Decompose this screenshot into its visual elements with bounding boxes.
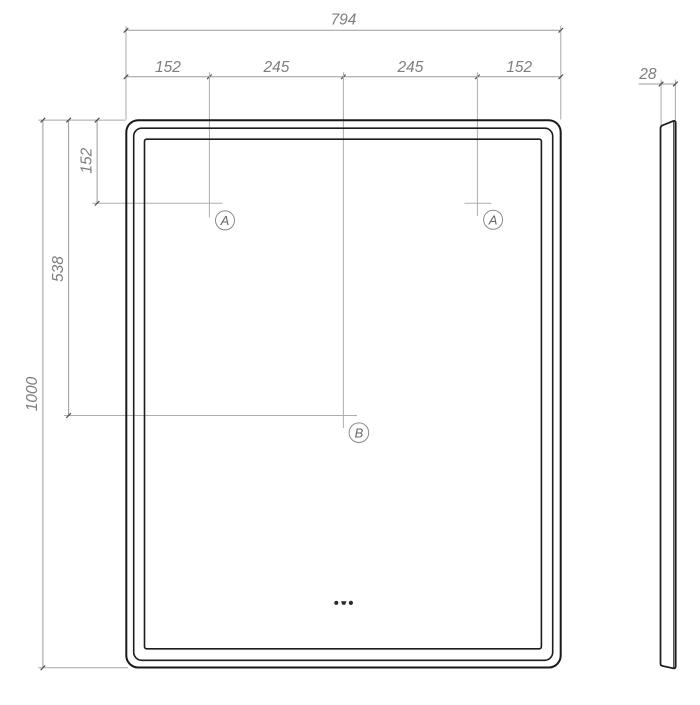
svg-text:538: 538 — [50, 256, 67, 282]
svg-text:152: 152 — [506, 59, 532, 76]
svg-text:1000: 1000 — [24, 376, 41, 411]
svg-text:245: 245 — [262, 59, 289, 76]
svg-text:B: B — [355, 426, 364, 441]
svg-text:28: 28 — [638, 66, 657, 83]
svg-text:245: 245 — [396, 59, 423, 76]
svg-text:152: 152 — [155, 59, 181, 76]
svg-text:794: 794 — [331, 11, 357, 28]
svg-text:152: 152 — [78, 147, 95, 173]
svg-text:A: A — [488, 213, 498, 228]
svg-text:A: A — [220, 213, 230, 228]
